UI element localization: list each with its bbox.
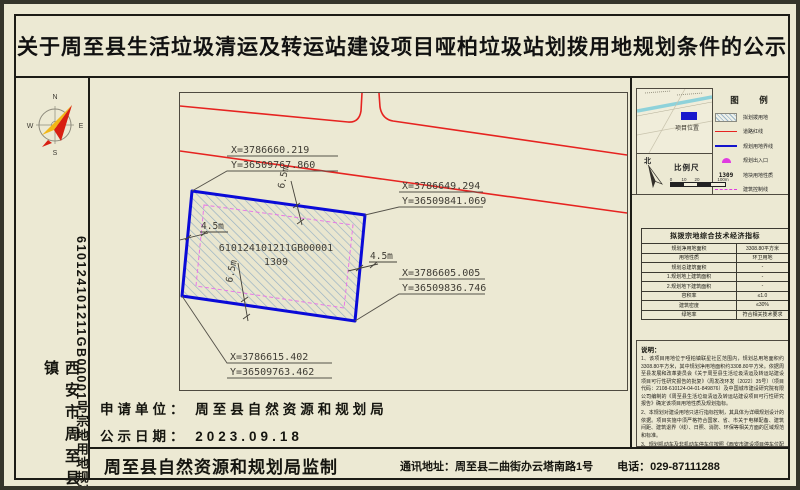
applicant-block: 申请单位： 周至县自然资源和规划局 公示日期： 2023.09.18 xyxy=(100,398,388,452)
legend-item: 拟划拨用地 xyxy=(715,113,789,121)
producer-label: 周至县自然资源和规划局监制 xyxy=(104,453,338,478)
sidebar-location: 西安市周至县哑柏镇 xyxy=(40,360,82,490)
compass-s: S xyxy=(53,150,58,156)
panel-divider xyxy=(630,76,632,449)
coord-bottom-right-x: X=3786605.005 xyxy=(402,268,480,279)
legend-item: 1309 地块用地性质 xyxy=(715,171,789,179)
legend-item: 规划用地界线 xyxy=(715,142,789,150)
table-row: 容积率≤1.0 xyxy=(642,291,789,301)
legend-title: 图 例 xyxy=(715,94,789,106)
coord-top-left-y: Y=36509767.860 xyxy=(231,160,315,171)
red-line-swatch-icon xyxy=(715,131,737,132)
applicant-value: 周至县自然资源和规划局 xyxy=(195,402,388,417)
scale-tick: 10 xyxy=(681,177,686,182)
page-title: 关于周至县生活垃圾清运及转运站建设项目哑柏垃圾站划拨用地规划条件的公示 xyxy=(17,31,787,61)
coord-bottom-left-y: Y=36509763.462 xyxy=(230,367,314,378)
site-plan-frame: X=3786660.219 Y=36509767.860 X=3786649.2… xyxy=(179,92,628,391)
table-row: 规划总建筑面积- xyxy=(642,263,789,273)
location-map: 项目位置 xyxy=(636,88,713,154)
parcel-id-label: 610124101211GB00001 xyxy=(219,243,333,254)
parcel-code-label: 1309 xyxy=(264,257,288,268)
project-site-label: 项目位置 xyxy=(675,124,699,132)
dim-right: 4.5m xyxy=(370,251,393,262)
note-paragraph: 1、该项目用地位于哑柏镇联星社区范围内，规划总用地面积约3308.80平方米，其… xyxy=(641,356,784,409)
title-bar: 关于周至县生活垃圾清运及转运站建设项目哑柏垃圾站划拨用地规划条件的公示 xyxy=(14,14,790,78)
project-site-marker xyxy=(681,112,697,120)
table-row: 建筑密度≤30% xyxy=(642,301,789,311)
legend-divider xyxy=(632,194,790,195)
note-paragraph: 2、本规划对建设用地只进行指标控制，其具体为详细规划设计的依据。项目实施中须严格… xyxy=(641,410,784,440)
blue-line-swatch-icon xyxy=(715,145,737,147)
notes-box: 说明： 1、该项目用地位于哑柏镇联星社区范围内，规划总用地面积约3308.80平… xyxy=(636,340,789,447)
legend-item: 建筑控制线 xyxy=(715,186,789,194)
table-row: 用地性质环卫用地 xyxy=(642,253,789,263)
table-title: 拟拨宗地综合技术经济指标 xyxy=(642,229,789,244)
address-label: 通讯地址：周至县二曲街办云塔南路1号 xyxy=(400,458,593,474)
dashed-line-swatch-icon xyxy=(715,189,737,190)
indicators-table: 拟拨宗地综合技术经济指标 规划净用地面积3308.80平方米 用地性质环卫用地 … xyxy=(641,228,789,320)
coord-bottom-left-x: X=3786615.402 xyxy=(230,352,308,363)
compass-rose-icon: N E S W xyxy=(26,90,84,156)
site-plan-drawing: X=3786660.219 Y=36509767.860 X=3786649.2… xyxy=(180,93,627,390)
code-swatch: 1309 xyxy=(715,172,737,179)
public-notice-sheet: 关于周至县生活垃圾清运及转运站建设项目哑柏垃圾站划拨用地规划条件的公示 N E … xyxy=(0,0,800,490)
coord-top-right-x: X=3786649.294 xyxy=(402,181,480,192)
legend-item: 规划出入口 xyxy=(715,157,789,165)
table-row: 绿地率符合相关技术要求 xyxy=(642,310,789,320)
compass-e: E xyxy=(79,123,84,130)
coord-top-right-y: Y=36509841.069 xyxy=(402,196,486,207)
table-row: 1.规划地上建筑面积- xyxy=(642,272,789,282)
scale-label: 比例尺 xyxy=(674,162,700,173)
legend: 图 例 拟划拨用地 道路红线 规划用地界线 规划出入口 1309 地块用地性质 … xyxy=(715,94,789,200)
phone-label: 电话：029-87111288 xyxy=(617,458,720,474)
table-row: 2.规划地下建筑面积- xyxy=(642,282,789,292)
legend-item: 道路红线 xyxy=(715,128,789,136)
table-row: 规划净用地面积3308.80平方米 xyxy=(642,244,789,254)
dim-left: 4.5m xyxy=(201,221,224,232)
entrance-swatch-icon xyxy=(715,158,737,163)
compass-w: W xyxy=(27,123,34,130)
date-value: 2023.09.18 xyxy=(195,429,303,444)
compass-n: N xyxy=(52,94,57,101)
footer-bar: 周至县自然资源和规划局监制 通讯地址：周至县二曲街办云塔南路1号 电话：029-… xyxy=(90,447,790,482)
scale-tick: 0 xyxy=(670,177,673,182)
coord-bottom-right-y: Y=36509836.746 xyxy=(402,283,486,294)
coord-top-left-x: X=3786660.219 xyxy=(231,145,309,156)
hatch-swatch-icon xyxy=(715,113,737,122)
notes-title: 说明： xyxy=(641,344,784,354)
applicant-label: 申请单位： xyxy=(100,402,188,417)
scale-tick: 20 xyxy=(694,177,699,182)
date-label: 公示日期： xyxy=(100,429,188,444)
sidebar: N E S W 610124101211GB00001号宗地用地规划条 西安市周… xyxy=(14,76,90,480)
parcel-polygon xyxy=(182,191,365,321)
north-arrow-icon xyxy=(640,162,666,190)
